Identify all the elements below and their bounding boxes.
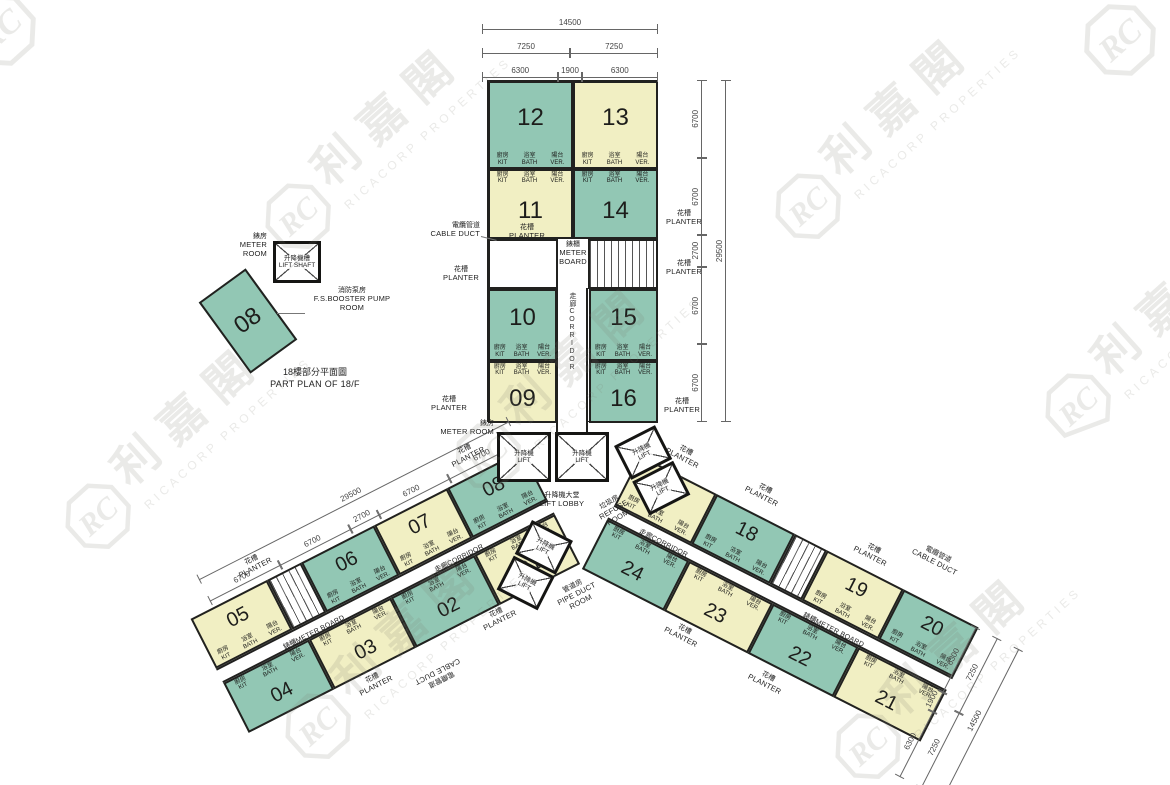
room-label-bath: 浴室BATH xyxy=(607,172,623,185)
watermark-brand-en: RICACORP PROPERTIES xyxy=(1121,245,1170,402)
planter-label: 花槽PLANTER xyxy=(660,260,708,277)
unit-room-labels: 廚房KIT浴室BATH陽台VER. xyxy=(591,363,656,378)
corridor-label-en: CORRIDOR xyxy=(569,308,576,372)
leader-line xyxy=(277,313,305,314)
dimension-segment: 6300 xyxy=(582,62,658,78)
ricacorp-watermark: RC 利嘉閣 RICACORP PROPERTIES xyxy=(1020,193,1170,452)
unit-number: 08 xyxy=(201,271,294,371)
corridor-label-zh: 走廊 xyxy=(567,292,577,308)
unit-number: 12 xyxy=(490,83,571,152)
room-label-bath: 浴室BATH xyxy=(615,345,631,358)
room-label-kit: 廚房KIT xyxy=(473,515,489,532)
lift-label-zh: 升降機 xyxy=(571,450,593,457)
planter-label: 花槽PLANTER xyxy=(438,266,484,283)
dimension-segment: 6700 xyxy=(701,267,717,345)
room-label-ver: 陽台VER. xyxy=(550,172,564,185)
part-plan-18f: 錶房METER ROOM 升降機槽 LIFT SHAFT 08 消防泵房F.S.… xyxy=(215,225,410,400)
planter-label: 花槽PLANTER xyxy=(426,396,472,413)
unit-12: 12廚房KIT浴室BATH陽台VER. xyxy=(488,81,573,169)
ricacorp-watermark: RC xyxy=(1071,0,1170,89)
room-label-kit: 廚房KIT xyxy=(595,345,607,358)
room-label-kit: 廚房KIT xyxy=(701,534,717,551)
dimension-value: 14500 xyxy=(482,18,658,27)
room-label-kit: 廚房KIT xyxy=(494,364,506,377)
room-label-bath: 浴室BATH xyxy=(522,153,538,166)
staircase-central xyxy=(588,239,658,289)
room-label-kit: 廚房KIT xyxy=(400,552,416,569)
lift-shaft-label-zh: 升降機槽 xyxy=(283,255,311,262)
unit-number: 14 xyxy=(575,186,656,237)
watermark-brand-zh: 利嘉閣 xyxy=(805,0,1012,189)
room-label-kit: 廚房KIT xyxy=(497,153,509,166)
room-label-kit: 廚房KIT xyxy=(887,629,903,646)
dimension-value: 7250 xyxy=(482,42,570,51)
unit-number: 13 xyxy=(575,83,656,152)
lift-label-en: LIFT xyxy=(516,457,531,464)
svg-text:RC: RC xyxy=(1051,380,1105,434)
meter-room-label: 錶房METER ROOM xyxy=(440,420,494,437)
unit-number: 10 xyxy=(490,291,555,344)
room-label-kit: 廚房KIT xyxy=(217,645,233,662)
cable-duct-label: 電纜管道CABLE DUCT xyxy=(398,222,480,239)
ricacorp-logo-icon: RC xyxy=(1033,361,1123,451)
unit-room-labels: 廚房KIT浴室BATH陽台VER. xyxy=(575,171,656,186)
dimension-value: 6700 xyxy=(691,80,700,158)
floor-plan-canvas: RC RC 利嘉閣 RICACORP PROPERTIES RC 利嘉閣 RIC… xyxy=(0,0,1170,785)
planter-label: 花槽PLANTER xyxy=(660,210,708,227)
part-plan-unit-08: 08 xyxy=(199,268,298,373)
ricacorp-watermark: RC 利嘉閣 RICACORP PROPERTIES xyxy=(750,0,1024,251)
meter-room-label: 錶房METER ROOM xyxy=(215,233,267,258)
dimension-line: 630019006300 xyxy=(482,62,658,78)
lift-label-zh: 升降機 xyxy=(513,450,535,457)
dimension-value: 6700 xyxy=(691,267,700,345)
room-label-kit: 廚房KIT xyxy=(811,590,827,607)
room-label-ver: 陽台VER. xyxy=(537,345,551,358)
unit-room-labels: 廚房KIT浴室BATH陽台VER. xyxy=(490,171,571,186)
unit-16: 16廚房KIT浴室BATH陽台VER. xyxy=(589,361,658,423)
dimension-chain-right: 2950067006700270067006700 xyxy=(701,80,741,422)
dimension-line: 14500 xyxy=(482,14,658,30)
svg-text:RC: RC xyxy=(0,1,30,60)
dimension-segment: 6300 xyxy=(482,62,558,78)
svg-text:RC: RC xyxy=(1091,11,1150,70)
unit-14: 14廚房KIT浴室BATH陽台VER. xyxy=(573,169,658,239)
part-plan-caption: 18樓部分平面圖 PART PLAN OF 18/F xyxy=(235,367,395,390)
dimension-segment: 7250 xyxy=(482,38,570,54)
dimension-segment: 7250 xyxy=(570,38,658,54)
room-label-kit: 廚房KIT xyxy=(494,345,506,358)
lift-shaft: 升降機槽 LIFT SHAFT xyxy=(273,241,321,283)
cable-duct-label: 電纜管道CABLE DUCT xyxy=(410,654,467,694)
planter-label: 花槽PLANTER xyxy=(739,475,788,511)
room-label-bath: 浴室BATH xyxy=(615,364,631,377)
room-label-ver: 陽台VER. xyxy=(635,172,649,185)
unit-room-labels: 廚房KIT浴室BATH陽台VER. xyxy=(490,363,555,378)
lift-lobby-label: 升降機大堂LIFT LOBBY xyxy=(518,492,606,509)
unit-10: 10廚房KIT浴室BATH陽台VER. xyxy=(488,289,557,361)
part-plan-caption-en: PART PLAN OF 18/F xyxy=(235,379,395,391)
room-label-kit: 廚房KIT xyxy=(582,172,594,185)
planter-label: 花槽PLANTER xyxy=(658,398,706,415)
dimension-value: 1900 xyxy=(923,687,941,711)
room-label-bath: 浴室BATH xyxy=(522,172,538,185)
lift-shaft-cell: 升降機槽 LIFT SHAFT xyxy=(273,241,321,283)
pump-room-label: 消防泵房F.S.BOOSTER PUMP ROOM xyxy=(307,287,397,312)
unit-room-labels: 廚房KIT浴室BATH陽台VER. xyxy=(575,152,656,167)
room-label-bath: 浴室BATH xyxy=(514,364,530,377)
unit-room-labels: 廚房KIT浴室BATH陽台VER. xyxy=(490,152,571,167)
dimension-segment: 1900 xyxy=(558,62,581,78)
ricacorp-watermark: RC xyxy=(0,0,49,79)
svg-text:RC: RC xyxy=(71,490,125,544)
unit-room-labels: 廚房KIT浴室BATH陽台VER. xyxy=(591,344,656,359)
ricacorp-logo-icon: RC xyxy=(53,471,143,561)
room-label-ver: 陽台VER. xyxy=(638,364,652,377)
unit-number: 16 xyxy=(591,378,656,421)
ricacorp-logo-icon: RC xyxy=(0,0,49,79)
cable-duct-label: 電纜管道CABLE DUCT xyxy=(906,538,965,579)
dimension-line: 67006700270067006700 xyxy=(701,80,717,422)
room-label-ver: 陽台VER. xyxy=(537,364,551,377)
planter-label: 花槽PLANTER xyxy=(505,224,549,241)
room-label-kit: 廚房KIT xyxy=(327,589,343,606)
room-label-kit: 廚房KIT xyxy=(582,153,594,166)
room-label-bath: 浴室BATH xyxy=(607,153,623,166)
meter-board-label: 錶櫃METER BOARD xyxy=(550,241,596,266)
dimension-segment: 14500 xyxy=(482,14,658,30)
lift-cell: 升降機 LIFT xyxy=(497,432,551,482)
lift-cell: 升降機 LIFT xyxy=(555,432,609,482)
unit-15: 15廚房KIT浴室BATH陽台VER. xyxy=(589,289,658,361)
room-label-ver: 陽台VER. xyxy=(638,345,652,358)
room-label-ver: 陽台VER. xyxy=(550,153,564,166)
room-label-bath: 浴室BATH xyxy=(514,345,530,358)
lift-shaft-label-en: LIFT SHAFT xyxy=(278,262,316,269)
room-label-kit: 廚房KIT xyxy=(497,172,509,185)
ricacorp-logo-icon: RC xyxy=(1071,0,1170,89)
lift-label-en: LIFT xyxy=(574,457,589,464)
svg-text:RC: RC xyxy=(291,700,345,754)
dimension-segment: 29500 xyxy=(725,80,741,422)
room-label-ver: 陽台VER. xyxy=(635,153,649,166)
unit-number: 15 xyxy=(591,291,656,344)
unit-08: 08 xyxy=(199,268,298,373)
watermark-brand-en: RICACORP PROPERTIES xyxy=(851,45,1024,202)
dimension-segment: 6700 xyxy=(701,80,717,158)
dimension-value: 1900 xyxy=(558,66,581,75)
watermark-brand-zh: 利嘉閣 xyxy=(295,3,502,199)
pipe-duct-room-label: 管道房PIPE DUCT ROOM xyxy=(545,570,608,619)
room-label-kit: 廚房KIT xyxy=(595,364,607,377)
ricacorp-logo-icon: RC xyxy=(763,161,853,251)
dimension-value: 6300 xyxy=(582,66,658,75)
dimension-value: 7250 xyxy=(570,42,658,51)
lift-bank-central: 升降機 LIFT 升降機 LIFT xyxy=(497,432,609,482)
part-plan-caption-zh: 18樓部分平面圖 xyxy=(235,367,395,379)
dimension-chain-top: 1450072507250630019006300 xyxy=(482,14,658,78)
dimension-value: 6300 xyxy=(482,66,558,75)
svg-text:RC: RC xyxy=(781,180,835,234)
dimension-value: 2700 xyxy=(345,505,377,527)
dimension-line: 29500 xyxy=(725,80,741,422)
cable-duct-room xyxy=(488,239,558,289)
unit-room-labels: 廚房KIT浴室BATH陽台VER. xyxy=(490,344,555,359)
unit-13: 13廚房KIT浴室BATH陽台VER. xyxy=(573,81,658,169)
dimension-line: 72507250 xyxy=(482,38,658,54)
watermark-brand-zh: 利嘉閣 xyxy=(1075,193,1170,389)
